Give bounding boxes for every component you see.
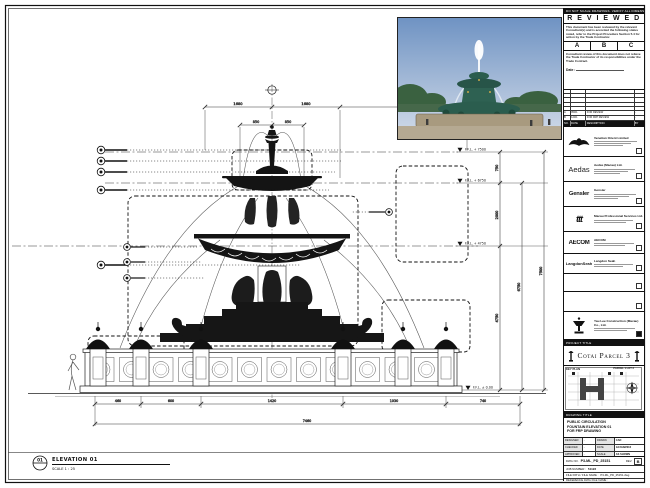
consultant-architect: Aedas Aedas (Macau) Ltd. xyxy=(564,157,644,182)
consultant-blank-2 xyxy=(564,292,644,312)
gensler-logo: Gensler xyxy=(566,191,592,197)
consultant-client: Venetian Orient Limited xyxy=(564,127,644,157)
date-label: Date : xyxy=(566,68,575,72)
reference-photo xyxy=(397,17,562,140)
rev-no: B xyxy=(564,116,571,120)
consultant-blank-1 xyxy=(564,274,644,292)
approved-value: - xyxy=(583,452,596,457)
dim-b1: 460 xyxy=(115,399,121,403)
dim-v5: 7500 xyxy=(539,267,543,276)
ref-label: REFERENCE DWG FILE NAME : xyxy=(566,479,608,481)
dwg-no-value: P3-ML_PD_25151 xyxy=(581,459,611,463)
grade-b: B xyxy=(591,42,618,50)
consultant-name: Venetian Orient Limited xyxy=(594,137,642,141)
dwg-no-label: DWG NO. xyxy=(566,459,579,463)
project-section: PROJECT TITLE Cotai Parcel 3 xyxy=(564,340,644,366)
signature-fields: DESIGNED - DRAWN CAD CHECKED - DATE 12/J… xyxy=(564,438,644,457)
designed-value: - xyxy=(583,438,596,444)
drawn-label: DRAWN xyxy=(596,438,615,444)
trade-contractor: Yau Lee Construction (Macau) Co., Ltd. xyxy=(564,312,644,340)
grade-c: C xyxy=(618,42,644,50)
rev-value: B xyxy=(634,458,642,465)
dim-mid-1: 850 xyxy=(253,120,259,124)
scale-figure xyxy=(68,354,79,390)
view-scale: SCALE 1 : 25 xyxy=(52,467,75,471)
rev-desc: FOR FRP REVIEW xyxy=(586,116,635,120)
dim-v4: 6750 xyxy=(517,283,521,292)
consultant-name: Aedas (Macau) Ltd. xyxy=(594,164,642,168)
scale-value: AS SHOWN xyxy=(615,452,639,457)
fountain-upper-basin xyxy=(222,176,322,191)
drawing-title-line-3: FOR FRP DRAWING xyxy=(567,429,641,434)
checkbox xyxy=(636,265,643,272)
rev-h-by: BY xyxy=(635,121,644,126)
fountain-plinth xyxy=(160,302,384,342)
drawing-title-section: DRAWING TITLE PUBLIC CIRCULATION FOUNTAI… xyxy=(564,412,644,438)
consultant-qs: LangdonSeah Langdon Seah xyxy=(564,254,644,274)
consultant-name: Langdon Seah xyxy=(594,260,642,264)
drawn-value: CAD xyxy=(615,438,639,444)
reviewed-stamp: R E V I E W E D This document has been r… xyxy=(564,14,644,90)
file-label: FILE PATH / FILE NAME : xyxy=(566,473,598,477)
date-field-label: DATE xyxy=(596,445,615,451)
reference-row: REFERENCE DWG FILE NAME : xyxy=(564,479,644,481)
scale-label: SCALE xyxy=(596,452,615,457)
job-value: 51123 xyxy=(588,467,596,471)
dim-b4: 1030 xyxy=(390,399,398,403)
grade-a: A xyxy=(564,42,591,50)
title-block: DO NOT SCALE DRAWINGS. VERIFY ALL DIMENS… xyxy=(563,8,644,481)
consultant-designer: Gensler Gensler xyxy=(564,182,644,207)
reviewed-para-2: Consultant review of this document does … xyxy=(564,51,644,65)
designed-label: DESIGNED xyxy=(564,438,583,444)
project-name: Cotai Parcel 3 xyxy=(577,351,630,360)
key-plan-label: KEY PLAN xyxy=(566,367,580,371)
rev-date: 05/01 xyxy=(571,111,586,115)
dim-b5: 740 xyxy=(480,399,486,403)
venetian-lion-logo-icon xyxy=(566,136,592,147)
checkbox xyxy=(636,223,643,230)
rev-h-desc: DESCRIPTION xyxy=(586,121,635,126)
rev-h-no: NO. xyxy=(564,121,571,126)
reviewed-title: R E V I E W E D xyxy=(564,14,644,24)
date-line: Date : xyxy=(564,65,644,72)
dim-v3: 4750 xyxy=(495,314,499,323)
drawing-sheet: 1680 1680 3180 850 850 F.F.L. + 7500 F.F… xyxy=(0,0,650,488)
consultant-name: AECOM xyxy=(594,239,642,243)
ttt-logo: ttt xyxy=(566,214,592,224)
rev-label: REV. xyxy=(626,459,632,463)
dim-b3: 1420 xyxy=(268,399,276,403)
dim-v1: 750 xyxy=(495,165,499,171)
contractor-name: Yau Lee Construction (Macau) Co., Ltd. xyxy=(594,320,642,327)
reviewed-para-1: This document has been reviewed by the r… xyxy=(564,24,644,41)
dim-v2: 2000 xyxy=(495,211,499,220)
dim-b2: 600 xyxy=(168,399,174,403)
aedas-logo: Aedas xyxy=(566,165,592,174)
key-plan-map xyxy=(564,366,643,411)
dwg-number-row: DWG NO. P3-ML_PD_25151 REV. B xyxy=(564,457,644,466)
rev-by: - xyxy=(635,116,644,120)
bottom-dimensions: 460 600 1420 1030 740 7460 xyxy=(93,396,522,426)
rev-date: 12/01 xyxy=(571,116,586,120)
checkbox xyxy=(636,283,643,290)
aecom-logo: AECOM xyxy=(566,240,592,246)
consultant-name: Gensler xyxy=(594,189,642,193)
file-value: P3-ML_PD_25151.dwg xyxy=(600,473,629,477)
rev-desc: FOR REVIEW xyxy=(586,111,635,115)
checkbox xyxy=(636,148,643,155)
date-value: 12/JAN/2016 xyxy=(615,445,639,451)
view-title: 01 ELEVATION 01 SCALE 1 : 25 xyxy=(33,456,170,471)
view-title-text: ELEVATION 01 xyxy=(52,457,98,463)
lamp-icon xyxy=(634,349,640,362)
address-lines xyxy=(594,141,642,146)
right-dimensions: 750 2000 4750 6750 7500 xyxy=(495,150,546,392)
checked-value: - xyxy=(583,445,596,451)
revision-header: NO. DATE DESCRIPTION BY xyxy=(564,121,644,126)
dim-overall: 7460 xyxy=(303,419,311,423)
ground-line xyxy=(28,394,546,397)
fountain-triton-figures xyxy=(245,196,300,228)
checkbox xyxy=(636,198,643,205)
level-7500: F.F.L. + 7500 xyxy=(465,148,486,152)
key-plan: KEY PLAN PARCEL 1 LOT 2 xyxy=(564,366,644,412)
view-number: 01 xyxy=(37,458,43,463)
consultant-name: Macau Professional Services Ltd. xyxy=(594,215,643,219)
photo-illustration xyxy=(398,18,561,139)
consultant-engineer: ttt Macau Professional Services Ltd. xyxy=(564,207,644,232)
contractor-fountain-logo-icon xyxy=(566,317,592,335)
level-0: F.F.L. ± 0.00 xyxy=(473,386,493,390)
checked-label: CHECKED xyxy=(564,445,583,451)
dim-top-1: 1680 xyxy=(233,102,243,106)
langdon-seah-logo: LangdonSeah xyxy=(566,261,592,266)
level-markers: F.F.L. + 7500 F.F.L. + 6750 F.F.L. + 475… xyxy=(456,148,548,390)
status-grades: A B C xyxy=(564,41,644,51)
checkbox xyxy=(636,303,643,310)
dim-top-2: 1680 xyxy=(301,102,311,106)
checkbox xyxy=(636,245,643,252)
checkbox xyxy=(636,331,643,338)
rev-by: - xyxy=(635,111,644,115)
key-plan-parcel-label: PARCEL 1 LOT 2 xyxy=(613,367,634,370)
job-label: JOB NUMBER : xyxy=(566,467,586,471)
approved-label: APPROVED xyxy=(564,452,583,457)
rev-no: A xyxy=(564,111,571,115)
dim-mid-2: 850 xyxy=(285,120,291,124)
consultant-mep: AECOM AECOM xyxy=(564,232,644,254)
revision-table: A 05/01 FOR REVIEW - B 12/01 FOR FRP REV… xyxy=(564,90,644,127)
rev-h-date: DATE xyxy=(571,121,586,126)
lamp-icon xyxy=(568,349,574,362)
checkbox xyxy=(636,173,643,180)
